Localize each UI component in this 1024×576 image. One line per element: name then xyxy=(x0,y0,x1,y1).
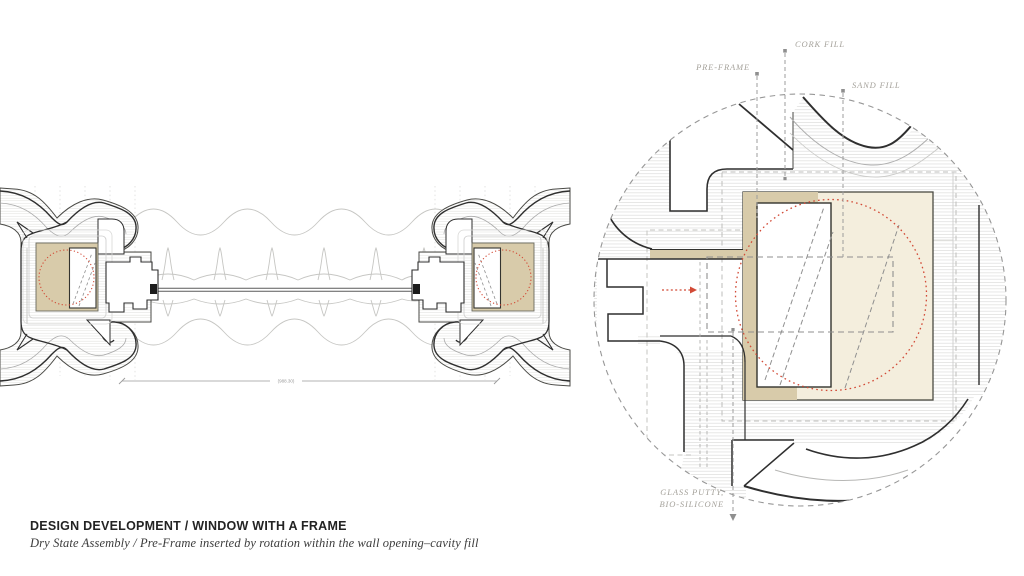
title-block: DESIGN DEVELOPMENT / WINDOW WITH A FRAME… xyxy=(30,519,479,551)
wavy-wall-pattern xyxy=(130,209,459,345)
right-jamb xyxy=(412,188,570,386)
label-cork-fill: CORK FILL xyxy=(795,39,845,49)
label-glass-putty: GLASS PUTTY, BIO-SILICONE xyxy=(650,486,724,510)
dimension-line: (988.30) xyxy=(119,377,500,384)
page-subtitle: Dry State Assembly / Pre-Frame inserted … xyxy=(30,536,479,551)
glazing xyxy=(146,284,424,295)
detail-circle xyxy=(593,49,1007,521)
label-pre-frame: PRE-FRAME xyxy=(690,62,750,72)
dimension-text: (988.30) xyxy=(278,379,295,384)
label-sand-fill: SAND FILL xyxy=(852,80,901,90)
left-jamb xyxy=(0,188,158,386)
plan-drawing: (988.30) xyxy=(0,186,570,386)
slide: (988.30) xyxy=(0,0,1024,576)
page-title: DESIGN DEVELOPMENT / WINDOW WITH A FRAME xyxy=(30,519,479,533)
